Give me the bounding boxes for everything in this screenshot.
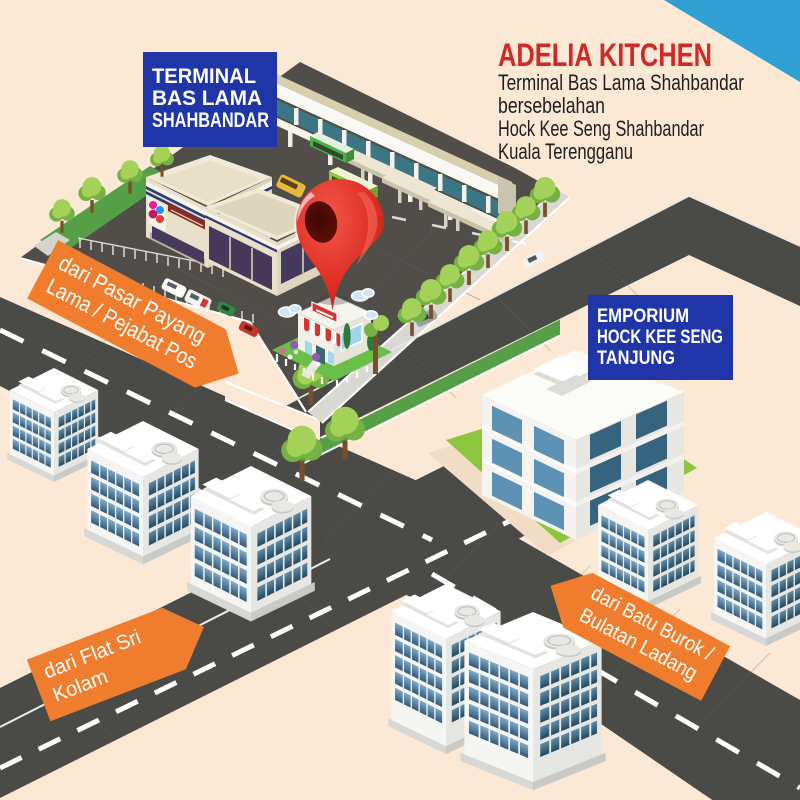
svg-text:Kuala Terengganu: Kuala Terengganu [498,139,633,164]
svg-text:Hock Kee Seng Shahbandar: Hock Kee Seng Shahbandar [498,116,704,141]
svg-text:TANJUNG: TANJUNG [597,348,675,369]
svg-text:HOCK KEE SENG: HOCK KEE SENG [597,327,723,348]
svg-text:BAS LAMA: BAS LAMA [152,87,262,110]
svg-text:EMPORIUM: EMPORIUM [597,306,689,327]
svg-text:TERMINAL: TERMINAL [152,65,256,88]
svg-text:SHAHBANDAR: SHAHBANDAR [152,109,269,132]
svg-text:bersebelahan: bersebelahan [498,93,605,118]
svg-text:Terminal Bas Lama Shahbandar: Terminal Bas Lama Shahbandar [498,70,744,95]
svg-text:ADELIA KITCHEN: ADELIA KITCHEN [498,37,712,73]
